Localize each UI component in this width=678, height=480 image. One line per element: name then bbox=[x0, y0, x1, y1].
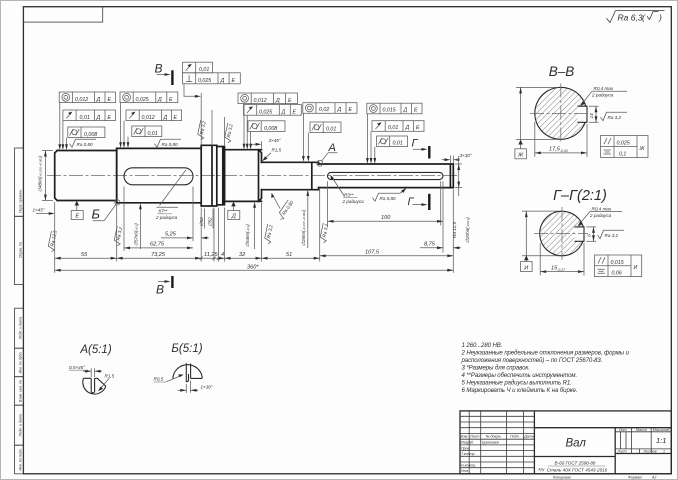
svg-text:Подп.: Подп. bbox=[510, 435, 520, 439]
svg-text:3×45°: 3×45° bbox=[269, 138, 281, 143]
svg-text:Лист: Лист bbox=[616, 450, 626, 454]
svg-text:6: 6 bbox=[587, 234, 592, 237]
svg-text:1×45°: 1×45° bbox=[33, 208, 45, 213]
svg-text:Копировал: Копировал bbox=[553, 475, 571, 479]
svg-text:И: И bbox=[524, 265, 528, 271]
svg-text:0,01: 0,01 bbox=[148, 131, 158, 137]
svg-text:Дата: Дата bbox=[523, 435, 533, 439]
svg-text:Д: Д bbox=[231, 214, 236, 220]
svg-text:Т.контр.: Т.контр. bbox=[461, 452, 476, 456]
svg-text:0,01: 0,01 bbox=[326, 126, 336, 132]
svg-text:Г: Г bbox=[408, 196, 415, 208]
svg-text:51: 51 bbox=[286, 252, 292, 258]
svg-text:Ra 0,80: Ra 0,80 bbox=[162, 142, 179, 147]
svg-text:6 Маркировать Ч и клеймить К н: 6 Маркировать Ч и клеймить К на бирке. bbox=[462, 387, 578, 394]
svg-text:0,025: 0,025 bbox=[617, 141, 630, 147]
svg-text:Н.контр.: Н.контр. bbox=[461, 463, 476, 467]
svg-text:11,25: 11,25 bbox=[204, 252, 218, 258]
svg-text:Лист: Лист bbox=[469, 435, 479, 439]
svg-text:Масса: Масса bbox=[636, 428, 647, 432]
svg-text:1×30°: 1×30° bbox=[201, 384, 213, 389]
svg-text:расположения поверхностей) – п: расположения поверхностей) – по ГОСТ 256… bbox=[461, 357, 603, 364]
svg-text:4 **Размеры обеспечить инструм: 4 **Размеры обеспечить инструментом. bbox=[462, 373, 578, 379]
svg-text:Д: Д bbox=[96, 115, 101, 121]
svg-text:107,5: 107,5 bbox=[365, 250, 380, 256]
svg-text:Сталь 40Х ГОСТ 4543-2016: Сталь 40Х ГОСТ 4543-2016 bbox=[547, 468, 608, 473]
svg-text:0,015: 0,015 bbox=[383, 108, 396, 114]
svg-text:0,01: 0,01 bbox=[393, 141, 403, 147]
svg-text:R0,5: R0,5 bbox=[154, 377, 164, 382]
svg-text:8,75: 8,75 bbox=[424, 242, 436, 248]
svg-text:0,012: 0,012 bbox=[75, 97, 88, 103]
svg-text:73,25: 73,25 bbox=[151, 252, 166, 258]
svg-text:4: 4 bbox=[221, 252, 224, 258]
svg-text:А: А bbox=[328, 142, 336, 154]
svg-text:∅20h6(-0,013): ∅20h6(-0,013) bbox=[465, 217, 470, 243]
svg-text:0,008: 0,008 bbox=[84, 132, 97, 138]
svg-text:0,015: 0,015 bbox=[611, 260, 624, 266]
svg-text:2 радиуса: 2 радиуса bbox=[591, 93, 614, 98]
svg-text:Е: Е bbox=[169, 97, 173, 103]
svg-text:В-60 ГОСТ 2590-88: В-60 ГОСТ 2590-88 bbox=[554, 461, 595, 466]
svg-text:Вал: Вал bbox=[566, 438, 587, 450]
svg-text:Изм.: Изм. bbox=[461, 435, 469, 439]
svg-text:14: 14 bbox=[589, 113, 594, 119]
svg-text:Пров.: Пров. bbox=[461, 446, 470, 450]
svg-text:Подп. и дата: Подп. и дата bbox=[18, 414, 22, 437]
svg-text:0,025: 0,025 bbox=[198, 78, 211, 84]
svg-text:Е: Е bbox=[108, 97, 112, 103]
svg-text:0,025: 0,025 bbox=[136, 97, 149, 103]
svg-text:0,5×45°: 0,5×45° bbox=[69, 365, 85, 370]
svg-text:Б: Б bbox=[92, 207, 101, 222]
svg-text:Ra 3,2: Ra 3,2 bbox=[608, 115, 622, 120]
svg-text:Е: Е bbox=[108, 115, 112, 121]
svg-text:0,025: 0,025 bbox=[259, 110, 272, 116]
svg-text:2 радиуса: 2 радиуса bbox=[589, 213, 612, 218]
svg-text:62,75: 62,75 bbox=[150, 242, 165, 248]
svg-text:Ra 0,80: Ra 0,80 bbox=[77, 142, 94, 147]
svg-text:Ra 3,2: Ra 3,2 bbox=[605, 233, 619, 238]
svg-text:5,25: 5,25 bbox=[165, 232, 177, 238]
svg-text:360*: 360* bbox=[247, 264, 259, 270]
svg-text:Кру: Кру bbox=[539, 468, 545, 472]
svg-text:5 Неуказанные радиусы выполнит: 5 Неуказанные радиусы выполнить R1. bbox=[462, 381, 572, 387]
svg-text:R1,5: R1,5 bbox=[105, 374, 115, 379]
svg-text:∅48k6(+0,018 +0,002): ∅48k6(+0,018 +0,002) bbox=[38, 155, 43, 192]
svg-text:Перв. примен.: Перв. примен. bbox=[18, 189, 22, 213]
svg-text:№ докум.: № докум. bbox=[486, 435, 502, 439]
svg-text:∅54к6(+0,4): ∅54к6(+0,4) bbox=[245, 224, 250, 247]
svg-text:R1,5: R1,5 bbox=[272, 148, 282, 153]
svg-text:2 радиуса: 2 радиуса bbox=[155, 215, 178, 220]
svg-text:): ) bbox=[658, 13, 662, 23]
svg-text:∅26k6(+0,015 +0,002): ∅26k6(+0,015 +0,002) bbox=[301, 209, 306, 246]
svg-text:Ra 12,5: Ra 12,5 bbox=[452, 221, 457, 238]
svg-text:Формат: Формат bbox=[628, 475, 642, 479]
svg-text:0,008: 0,008 bbox=[264, 126, 277, 132]
svg-text:55: 55 bbox=[81, 252, 88, 258]
svg-text:В–В: В–В bbox=[549, 64, 575, 79]
svg-text:В: В bbox=[156, 283, 164, 297]
svg-text:Г–Г(2:1): Г–Г(2:1) bbox=[553, 188, 607, 204]
svg-text:Е: Е bbox=[75, 214, 79, 220]
svg-text:Е: Е bbox=[349, 107, 353, 113]
svg-text:Е: Е bbox=[232, 78, 236, 84]
svg-text:Листов: Листов bbox=[642, 450, 656, 454]
svg-text:Подп. и дата: Подп. и дата bbox=[18, 317, 22, 340]
svg-text:∅52: ∅52 bbox=[208, 217, 213, 227]
svg-text:1 260...280 НВ.: 1 260...280 НВ. bbox=[462, 343, 503, 349]
svg-text:0,012: 0,012 bbox=[142, 115, 155, 121]
svg-text:1: 1 bbox=[663, 450, 665, 454]
svg-text:А(5:1): А(5:1) bbox=[79, 344, 111, 356]
svg-text:Утв.: Утв. bbox=[461, 469, 469, 473]
svg-text:Справ. №: Справ. № bbox=[18, 242, 22, 258]
svg-text:Лит.: Лит. bbox=[618, 428, 627, 432]
svg-text:Ермолаев: Ермолаев bbox=[482, 441, 499, 445]
svg-text:А2: А2 bbox=[651, 475, 656, 479]
svg-text:И: И bbox=[634, 265, 638, 271]
svg-text:Ж: Ж bbox=[517, 153, 524, 159]
svg-text:Д: Д bbox=[405, 125, 410, 131]
svg-text:Масштаб: Масштаб bbox=[653, 428, 671, 432]
svg-text:1:1: 1:1 bbox=[656, 436, 666, 445]
svg-text:0,06: 0,06 bbox=[612, 271, 622, 277]
svg-text:0,01: 0,01 bbox=[199, 67, 209, 73]
svg-text:100: 100 bbox=[381, 215, 391, 221]
svg-text:К7**: К7** bbox=[159, 209, 168, 214]
svg-text:0,01: 0,01 bbox=[388, 125, 398, 131]
svg-text:2 радиуса: 2 радиуса bbox=[342, 199, 365, 204]
svg-text:Д: Д bbox=[157, 97, 162, 103]
svg-text:Д: Д bbox=[403, 108, 408, 114]
svg-text:В: В bbox=[155, 62, 163, 76]
svg-text:Инв. № дубл.: Инв. № дубл. bbox=[18, 351, 22, 373]
svg-text:Е: Е bbox=[414, 108, 418, 114]
svg-text:Инв. № подл.: Инв. № подл. bbox=[18, 448, 22, 470]
svg-text:0,02: 0,02 bbox=[319, 107, 329, 113]
svg-text:Е: Е bbox=[293, 110, 297, 116]
svg-text:Д: Д bbox=[163, 115, 168, 121]
svg-text:∅53: ∅53 bbox=[199, 217, 204, 227]
svg-text:Д: Д bbox=[275, 98, 280, 104]
svg-text:0,01: 0,01 bbox=[80, 115, 90, 121]
svg-text:R3**: R3** bbox=[344, 193, 354, 198]
svg-text:R0,4 max: R0,4 max bbox=[592, 206, 612, 211]
svg-text:3 *Размеры для справок.: 3 *Размеры для справок. bbox=[462, 366, 530, 372]
svg-text:∅57к6(+0,5): ∅57к6(+0,5) bbox=[134, 223, 139, 246]
svg-text:3×30°: 3×30° bbox=[460, 153, 472, 158]
svg-text:Д: Д bbox=[96, 97, 101, 103]
svg-text:Ra 6,3: Ra 6,3 bbox=[618, 13, 643, 23]
svg-text:Д: Д bbox=[337, 107, 342, 113]
svg-text:Разраб.: Разраб. bbox=[461, 441, 474, 445]
svg-text:2 Неуказанные предельные откло: 2 Неуказанные предельные отклонения разм… bbox=[461, 351, 630, 357]
svg-text:Взам. инв. №: Взам. инв. № bbox=[18, 380, 22, 402]
svg-text:0,1: 0,1 bbox=[619, 152, 626, 158]
svg-text:0,012: 0,012 bbox=[254, 98, 267, 104]
svg-text:Д: Д bbox=[220, 78, 225, 84]
svg-text:Г: Г bbox=[412, 138, 419, 150]
svg-text:Е: Е bbox=[288, 98, 292, 104]
svg-text:32: 32 bbox=[239, 252, 246, 258]
svg-text:Ra 0,80: Ra 0,80 bbox=[380, 196, 397, 201]
svg-text:Б(5:1): Б(5:1) bbox=[171, 343, 202, 355]
svg-text:Е: Е bbox=[174, 115, 178, 121]
svg-text:Д: Д bbox=[281, 110, 286, 116]
svg-text:R0,4 max: R0,4 max bbox=[594, 86, 614, 91]
svg-text:Е: Е bbox=[416, 125, 420, 131]
